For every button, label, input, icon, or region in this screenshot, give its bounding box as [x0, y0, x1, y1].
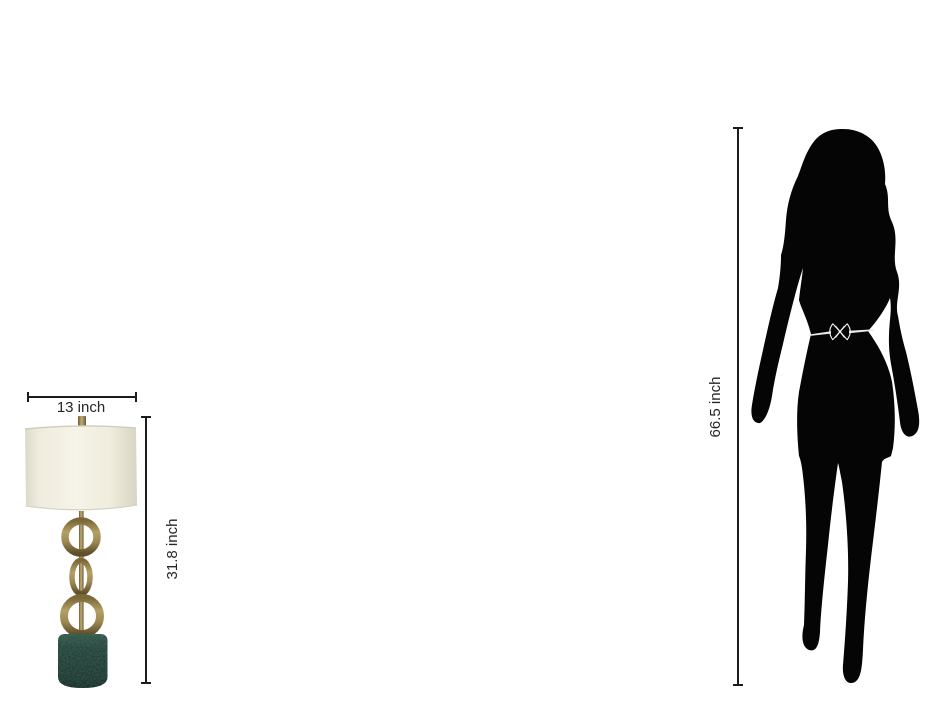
- lamp-width-dimension-line: [28, 396, 137, 398]
- lamp-height-label: 31.8 inch: [165, 509, 181, 589]
- lamp-width-right-tick: [135, 392, 137, 402]
- human-silhouette: [730, 115, 940, 700]
- lamp-finial: [78, 416, 86, 426]
- lamp-figure: [18, 410, 153, 695]
- lamp-width-left-tick: [27, 392, 29, 402]
- silhouette-body: [751, 129, 919, 683]
- lamp-shade: [25, 426, 137, 510]
- size-comparison-canvas: 13 inch 31.8 inch 66.5 inch: [0, 0, 950, 713]
- lamp-base: [54, 630, 112, 692]
- person-height-label: 66.5 inch: [708, 367, 724, 447]
- lamp-rod: [79, 511, 84, 637]
